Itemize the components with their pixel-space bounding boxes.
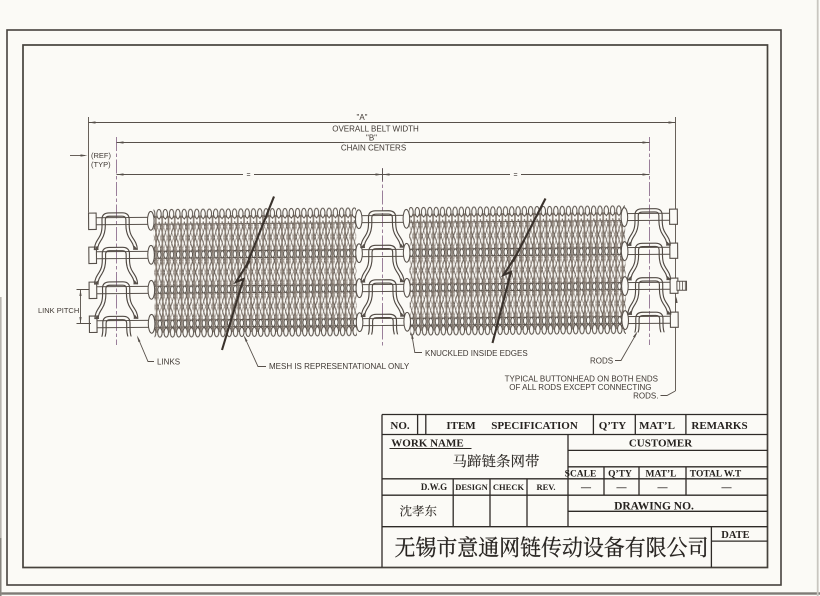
svg-text:NO.: NO. (390, 420, 410, 432)
svg-text:SPECIFICATION: SPECIFICATION (491, 420, 578, 432)
svg-text:D.W.G: D.W.G (421, 482, 447, 492)
svg-text:REMARKS: REMARKS (691, 420, 747, 432)
svg-text:CHECK: CHECK (493, 482, 525, 492)
svg-text:—: — (721, 483, 733, 494)
svg-text:REV.: REV. (537, 482, 556, 492)
svg-text:CUSTOMER: CUSTOMER (629, 437, 693, 449)
svg-text:SCALE: SCALE (565, 470, 597, 480)
svg-text:DATE: DATE (721, 530, 749, 541)
svg-text:—: — (616, 483, 628, 494)
svg-text:(REF): (REF) (91, 151, 111, 160)
svg-text:Q’TY: Q’TY (608, 470, 632, 480)
svg-text:RODS.: RODS. (633, 392, 658, 401)
svg-text:=: = (246, 172, 250, 179)
svg-text:KNUCKLED INSIDE EDGES: KNUCKLED INSIDE EDGES (425, 349, 528, 358)
svg-text:CHAIN CENTERS: CHAIN CENTERS (341, 144, 406, 153)
svg-text:Q’TY: Q’TY (599, 420, 627, 432)
svg-text:OF ALL RODS EXCEPT CONNECTING: OF ALL RODS EXCEPT CONNECTING (509, 383, 651, 392)
svg-text:MESH IS REPRESENTATIONAL ONLY: MESH IS REPRESENTATIONAL ONLY (269, 362, 410, 371)
svg-text:TOTAL W.T: TOTAL W.T (690, 470, 742, 480)
svg-text:DRAWING NO.: DRAWING NO. (614, 500, 694, 512)
svg-text:"B": "B" (366, 134, 377, 143)
svg-text:ITEM: ITEM (446, 420, 476, 432)
svg-text:(TYP): (TYP) (91, 160, 111, 169)
svg-text:LINKS: LINKS (157, 358, 180, 367)
svg-text:OVERALL BELT WIDTH: OVERALL BELT WIDTH (332, 125, 419, 134)
svg-text:DESIGN: DESIGN (455, 482, 488, 492)
svg-text:=: = (513, 172, 517, 179)
svg-text:WORK NAME: WORK NAME (391, 437, 463, 449)
svg-text:—: — (580, 483, 592, 494)
svg-text:—: — (657, 483, 669, 494)
svg-text:MAT’L: MAT’L (639, 420, 675, 432)
svg-text:MAT’L: MAT’L (646, 470, 677, 480)
svg-text:RODS: RODS (590, 357, 613, 366)
svg-text:"A": "A" (356, 113, 367, 122)
svg-text:LINK PITCH: LINK PITCH (38, 306, 79, 315)
